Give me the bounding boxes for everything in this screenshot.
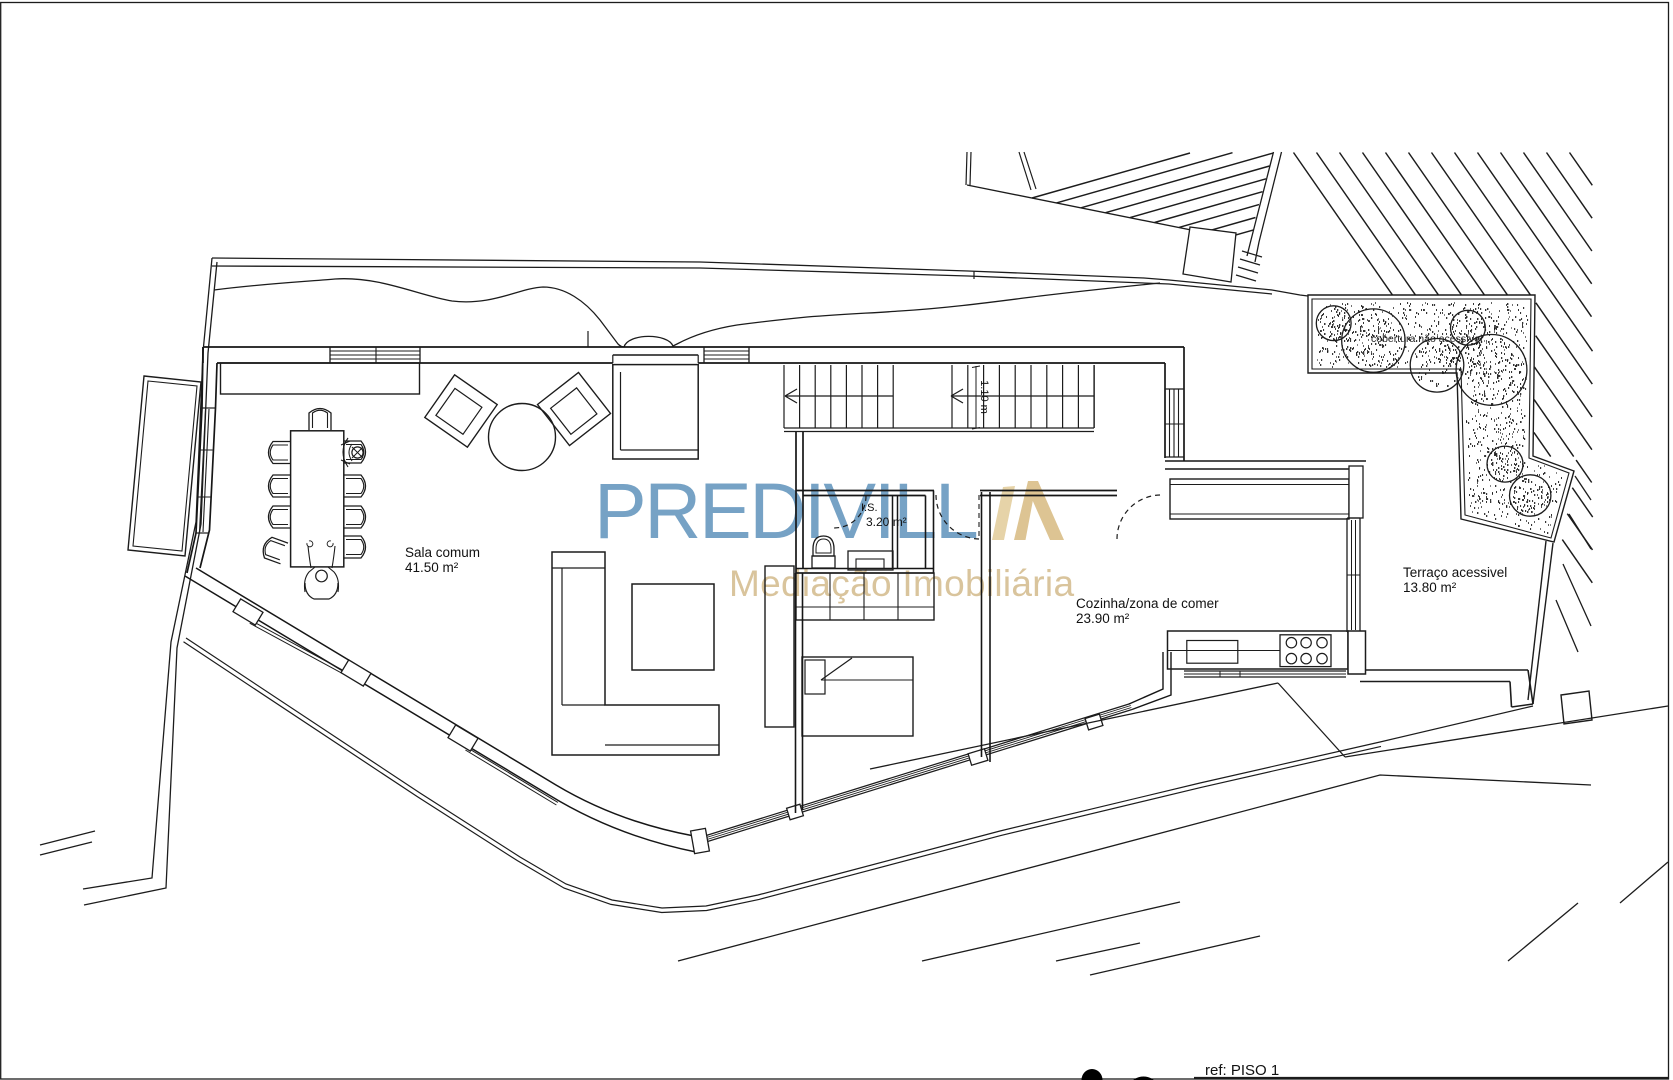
svg-text:41.50 m²: 41.50 m²	[405, 560, 459, 575]
svg-text:23.90 m²: 23.90 m²	[1076, 611, 1130, 626]
svg-text:cobertura não acessível: cobertura não acessível	[1371, 333, 1482, 345]
svg-text:Sala comum: Sala comum	[405, 545, 480, 560]
svg-text:I.S.: I.S.	[861, 502, 878, 514]
svg-text:ref: PISO 1: ref: PISO 1	[1205, 1062, 1279, 1079]
svg-text:Terraço acessivel: Terraço acessivel	[1403, 565, 1507, 580]
svg-text:PREDIVILL: PREDIVILL	[594, 466, 977, 555]
svg-text:1.10 m: 1.10 m	[978, 380, 990, 414]
svg-text:13.80 m²: 13.80 m²	[1403, 580, 1457, 595]
svg-text:3.20 m²: 3.20 m²	[866, 515, 907, 529]
svg-text:Cozinha/zona de comer: Cozinha/zona de comer	[1076, 596, 1219, 611]
